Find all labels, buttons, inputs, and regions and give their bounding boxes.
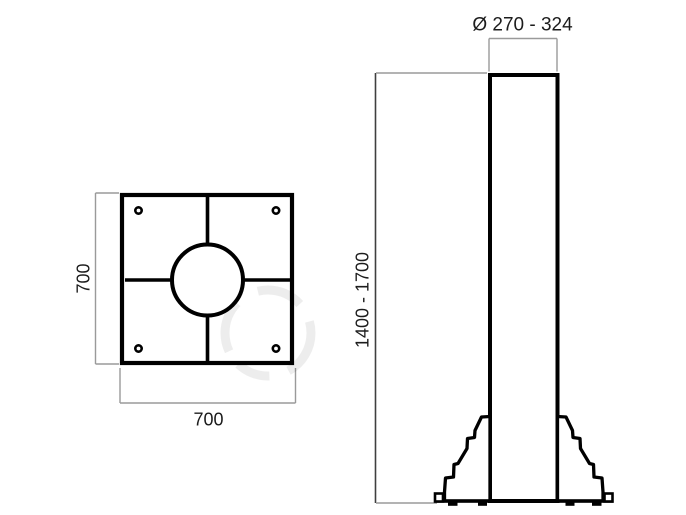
plate-width-label: 700: [193, 410, 223, 430]
anchor-tab: [592, 502, 602, 505]
drawing-canvas: 700 700: [0, 0, 686, 515]
pole-diameter-label: Ø 270 - 324: [472, 15, 573, 36]
pole-height-label: 1400 - 1700: [353, 252, 373, 348]
gusset-left: [445, 417, 491, 502]
plate-height-dimension: 700: [74, 193, 120, 364]
anchor-foot-left: [435, 494, 443, 502]
anchor-tab: [448, 502, 458, 505]
technical-drawing: 700 700: [0, 0, 686, 515]
bolt-hole: [135, 345, 141, 351]
pole-body: [490, 75, 558, 501]
anchor-tab: [478, 502, 487, 505]
bolt-hole: [273, 345, 279, 351]
gusset-right: [558, 417, 604, 502]
anchor-foot-right: [605, 494, 613, 502]
pole-side-view: Ø 270 - 324 1400 - 1700: [353, 15, 614, 506]
plate-top-view: 700 700: [74, 193, 296, 430]
anchor-tab: [566, 502, 575, 505]
plate-height-label: 700: [74, 263, 94, 293]
pole-diameter-dimension: Ø 270 - 324: [472, 15, 573, 72]
bolt-hole: [135, 207, 141, 213]
bolt-hole: [273, 207, 279, 213]
